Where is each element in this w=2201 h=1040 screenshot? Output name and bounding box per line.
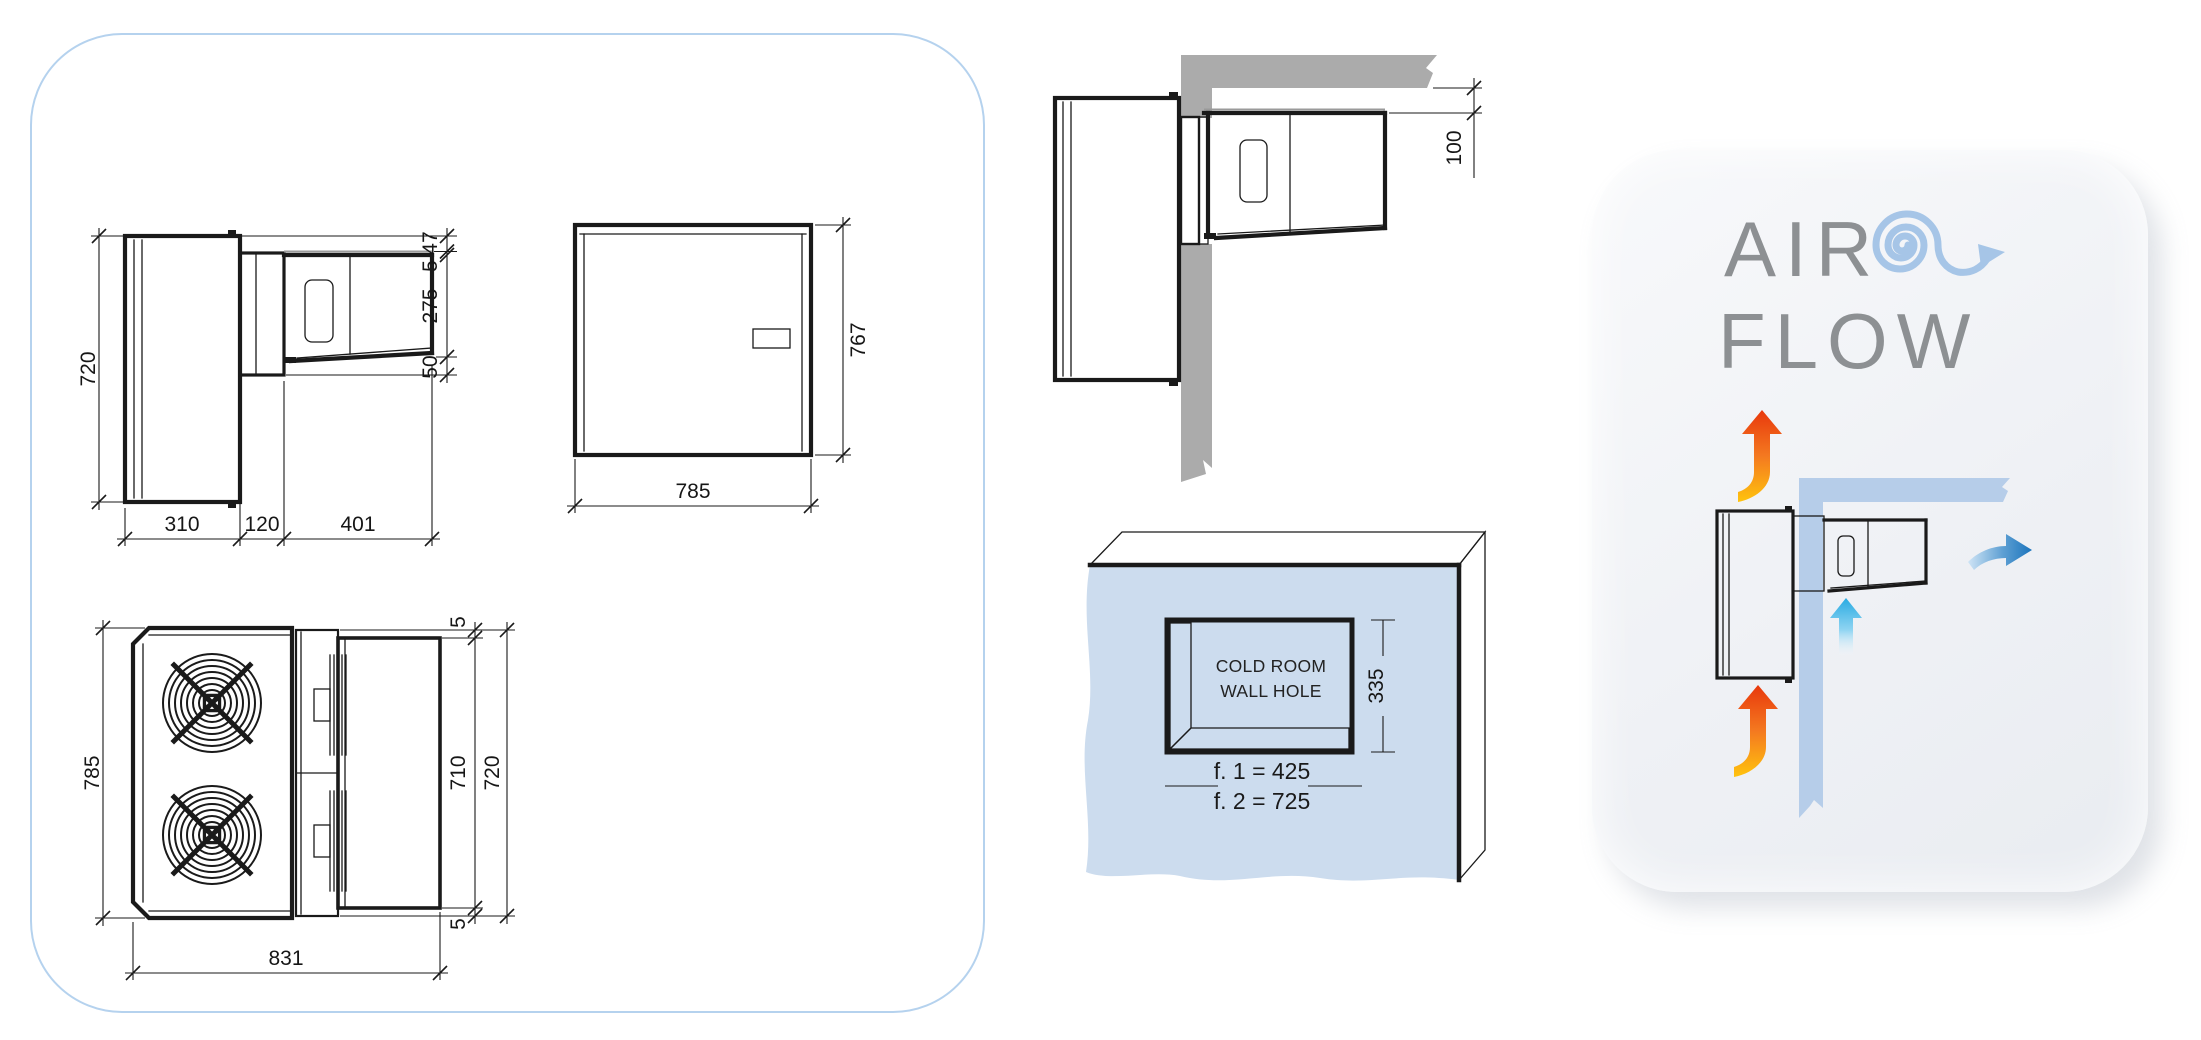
side-view-drawing: 720 310 120 401	[70, 220, 520, 570]
dim-front-width: 785	[567, 459, 819, 513]
dim-ceiling-clearance: 100	[1389, 78, 1482, 178]
spiral-arrowhead	[1978, 244, 2005, 267]
insulation-gasket	[1181, 117, 1199, 244]
wall-hole-label-line2: WALL HOLE	[1220, 681, 1322, 701]
dim-label-310: 310	[164, 513, 199, 536]
dim-label-5-top: 5	[447, 616, 470, 628]
dim-label-831: 831	[268, 947, 303, 970]
dim-side-height: 720	[77, 228, 125, 510]
wall-sleeve-section	[240, 253, 284, 375]
dim-front-height: 767	[815, 217, 870, 463]
wall-mounting-section-drawing: 100	[1040, 30, 1510, 530]
cold-air-intake-arrow-icon	[1830, 598, 1862, 656]
dim-label-f2: f. 2 = 725	[1214, 788, 1311, 814]
dim-label-767: 767	[847, 322, 870, 357]
dim-label-275: 275	[419, 288, 442, 323]
dim-label-785-top: 785	[81, 755, 104, 790]
wall-hole-drawing: COLD ROOM WALL HOLE 335 f. 1 = 425 f. 2 …	[1070, 520, 1510, 920]
hot-air-exhaust-arrow-icon	[1738, 410, 1782, 502]
airflow-diagram	[1622, 390, 2122, 860]
dim-label-f1: f. 1 = 425	[1214, 758, 1311, 784]
dim-label-710: 710	[447, 755, 470, 790]
supply-air-arrow-icon	[1968, 534, 2032, 570]
dim-label-50: 50	[419, 355, 442, 378]
condenser-section	[1055, 92, 1179, 386]
dim-label-5-bottom: 5	[447, 918, 470, 930]
dim-label-5-side: 5	[419, 260, 442, 272]
wall-side-face	[1459, 532, 1485, 880]
dim-label-720-top: 720	[481, 755, 504, 790]
mounting-bracket	[314, 655, 346, 755]
wall-sleeve-top	[296, 630, 338, 916]
dim-label-335: 335	[1365, 668, 1388, 703]
dim-side-bottom-chain: 310 120 401	[117, 365, 440, 546]
front-view-drawing: 785 767	[555, 205, 885, 525]
hot-air-exhaust-arrow-icon	[1734, 685, 1778, 777]
wall-roof-face	[1090, 532, 1485, 565]
airflow-panel: AIR FLOW	[1592, 150, 2148, 892]
dim-label-47: 47	[419, 231, 442, 254]
wall-hole-label-line1: COLD ROOM	[1216, 656, 1327, 676]
mounting-bracket	[314, 791, 346, 891]
dim-label-785-front: 785	[675, 480, 710, 503]
fan-grille-bottom	[163, 786, 261, 884]
cold-room-wall-face	[1085, 565, 1459, 881]
electrical-box	[753, 329, 790, 348]
cold-room-wall-band	[1799, 478, 2010, 818]
condenser-section	[125, 230, 240, 508]
dim-label-401: 401	[340, 513, 375, 536]
condenser-section-top	[133, 628, 292, 918]
front-face	[575, 225, 811, 455]
datasheet-page: 720 310 120 401	[0, 0, 2201, 1040]
evaporator-vent	[1240, 140, 1267, 202]
evaporator-vent	[305, 280, 333, 342]
dim-top-depth: 785	[81, 620, 145, 926]
dim-top-right-stack: 5 710 5 720	[340, 616, 515, 930]
air-spiral-icon	[1832, 175, 2022, 325]
top-view-drawing: 785 831 5 710 5	[75, 610, 545, 990]
ceiling-band	[1181, 55, 1437, 88]
dim-top-width: 831	[125, 912, 448, 980]
dim-label-100: 100	[1443, 130, 1466, 165]
dim-label-720-side: 720	[77, 351, 100, 386]
fan-grille-top	[163, 654, 261, 752]
evaporator-section	[1204, 110, 1385, 240]
wall-band-lower	[1181, 244, 1212, 482]
dim-label-120: 120	[244, 513, 279, 536]
evaporator-section	[284, 252, 432, 364]
